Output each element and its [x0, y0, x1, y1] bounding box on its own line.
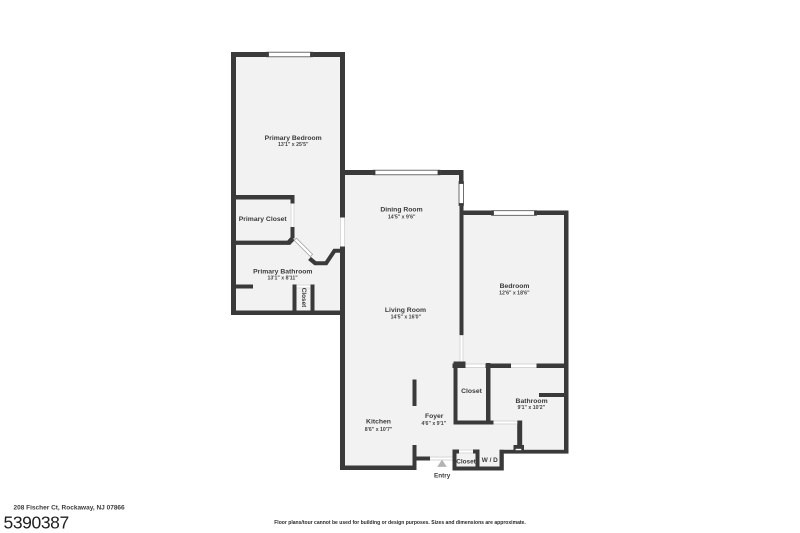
svg-text:Dining Room: Dining Room [380, 206, 422, 213]
svg-text:5390387: 5390387 [4, 513, 69, 533]
svg-text:13'1" x 25'5": 13'1" x 25'5" [278, 142, 309, 148]
svg-text:208 Fischer Ct, Rockaway, NJ 0: 208 Fischer Ct, Rockaway, NJ 07866 [14, 504, 126, 511]
svg-text:Primary Bedroom: Primary Bedroom [265, 135, 322, 142]
svg-text:Entry: Entry [434, 473, 451, 480]
svg-text:Closet: Closet [461, 388, 483, 395]
svg-text:4'6" x 9'1": 4'6" x 9'1" [421, 421, 446, 427]
svg-text:14'5" x 9'6": 14'5" x 9'6" [388, 214, 416, 220]
svg-text:Kitchen: Kitchen [366, 419, 391, 426]
svg-text:Primary Closet: Primary Closet [239, 216, 288, 223]
svg-text:9'1" x 10'2": 9'1" x 10'2" [518, 405, 546, 411]
svg-text:Foyer: Foyer [425, 413, 444, 420]
svg-text:13'1" x 8'11": 13'1" x 8'11" [268, 276, 299, 282]
svg-text:Closet: Closet [456, 458, 476, 465]
svg-text:14'5" x 16'0": 14'5" x 16'0" [391, 315, 422, 321]
svg-text:Bedroom: Bedroom [500, 283, 530, 290]
svg-text:12'6" x 18'6": 12'6" x 18'6" [499, 291, 530, 297]
svg-text:Bathroom: Bathroom [516, 398, 548, 405]
svg-text:Living Room: Living Room [385, 307, 426, 314]
svg-text:Closet: Closet [300, 288, 307, 308]
svg-text:8'6" x 10'7": 8'6" x 10'7" [365, 427, 393, 433]
svg-text:Floor plans/tour cannot be use: Floor plans/tour cannot be used for buil… [274, 520, 526, 526]
svg-text:W / D: W / D [482, 457, 498, 464]
